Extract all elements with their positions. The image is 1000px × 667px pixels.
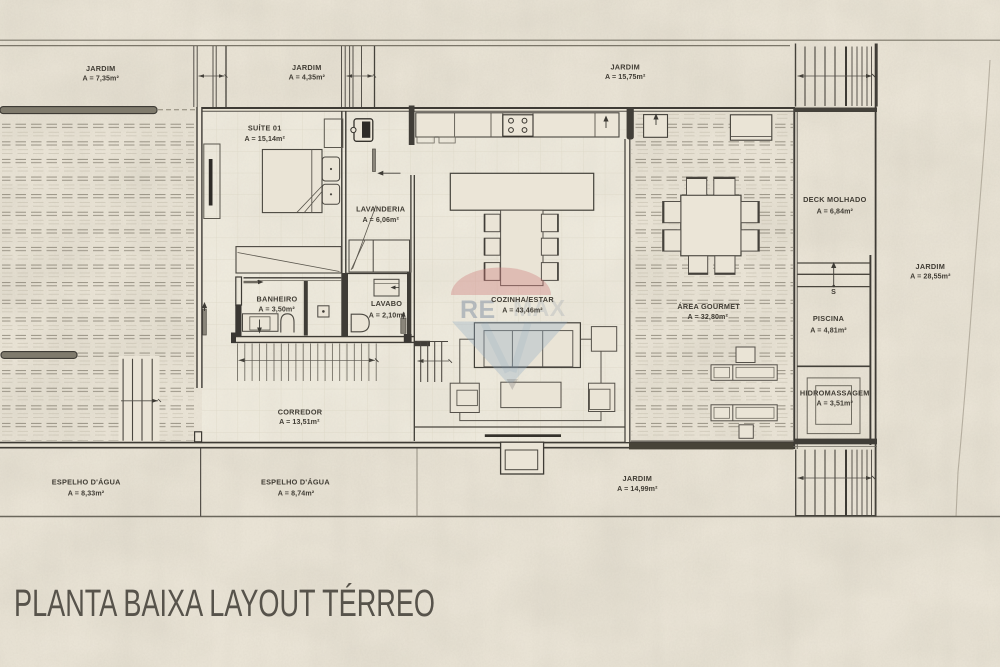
svg-text:ÁREA GOURMET: ÁREA GOURMET	[677, 302, 740, 311]
svg-text:COZINHA/ESTAR: COZINHA/ESTAR	[491, 295, 554, 304]
svg-text:JARDIM: JARDIM	[916, 262, 945, 271]
svg-text:A = 15,75m²: A = 15,75m²	[605, 73, 646, 81]
svg-text:A = 28,55m²: A = 28,55m²	[910, 273, 951, 281]
svg-text:A = 6,84m²: A = 6,84m²	[817, 208, 854, 216]
svg-text:PLANTA BAIXA LAYOUT TÉRREO: PLANTA BAIXA LAYOUT TÉRREO	[14, 582, 435, 625]
svg-text:A = 3,51m²: A = 3,51m²	[816, 400, 853, 408]
svg-text:A = 13,51m²: A = 13,51m²	[279, 418, 320, 426]
svg-text:A = 6,06m²: A = 6,06m²	[362, 216, 399, 224]
svg-text:A = 43,46m²: A = 43,46m²	[502, 306, 543, 314]
svg-text:BANHEIRO: BANHEIRO	[257, 294, 298, 303]
svg-text:DECK MOLHADO: DECK MOLHADO	[803, 195, 866, 204]
svg-text:JARDIM: JARDIM	[86, 64, 115, 73]
svg-text:HIDROMASSAGEM: HIDROMASSAGEM	[800, 389, 870, 398]
svg-text:PISCINA: PISCINA	[813, 314, 845, 323]
svg-text:LAVANDERIA: LAVANDERIA	[356, 204, 406, 213]
svg-text:JARDIM: JARDIM	[610, 62, 639, 71]
svg-text:A = 4,35m²: A = 4,35m²	[289, 74, 326, 82]
svg-text:A = 2,10m²: A = 2,10m²	[369, 311, 406, 319]
svg-text:A = 32,80m²: A = 32,80m²	[687, 313, 728, 321]
svg-text:A = 4,81m²: A = 4,81m²	[810, 326, 847, 334]
svg-text:S: S	[831, 288, 836, 296]
svg-text:SUÍTE 01: SUÍTE 01	[248, 124, 282, 133]
svg-text:JARDIM: JARDIM	[292, 63, 321, 72]
svg-text:ESPELHO D'ÁGUA: ESPELHO D'ÁGUA	[52, 478, 121, 487]
svg-text:A = 7,35m²: A = 7,35m²	[82, 75, 119, 83]
svg-text:ESPELHO D'ÁGUA: ESPELHO D'ÁGUA	[261, 478, 330, 487]
svg-text:A = 14,99m²: A = 14,99m²	[617, 485, 658, 493]
svg-text:A = 8,33m²: A = 8,33m²	[68, 490, 105, 498]
svg-text:A = 3,50m²: A = 3,50m²	[258, 305, 295, 313]
svg-text:LAVABO: LAVABO	[371, 299, 402, 308]
svg-text:A = 8,74m²: A = 8,74m²	[278, 490, 315, 498]
svg-text:A = 15,14m²: A = 15,14m²	[244, 135, 285, 143]
svg-text:JARDIM: JARDIM	[623, 474, 652, 483]
svg-text:CORREDOR: CORREDOR	[278, 407, 323, 416]
